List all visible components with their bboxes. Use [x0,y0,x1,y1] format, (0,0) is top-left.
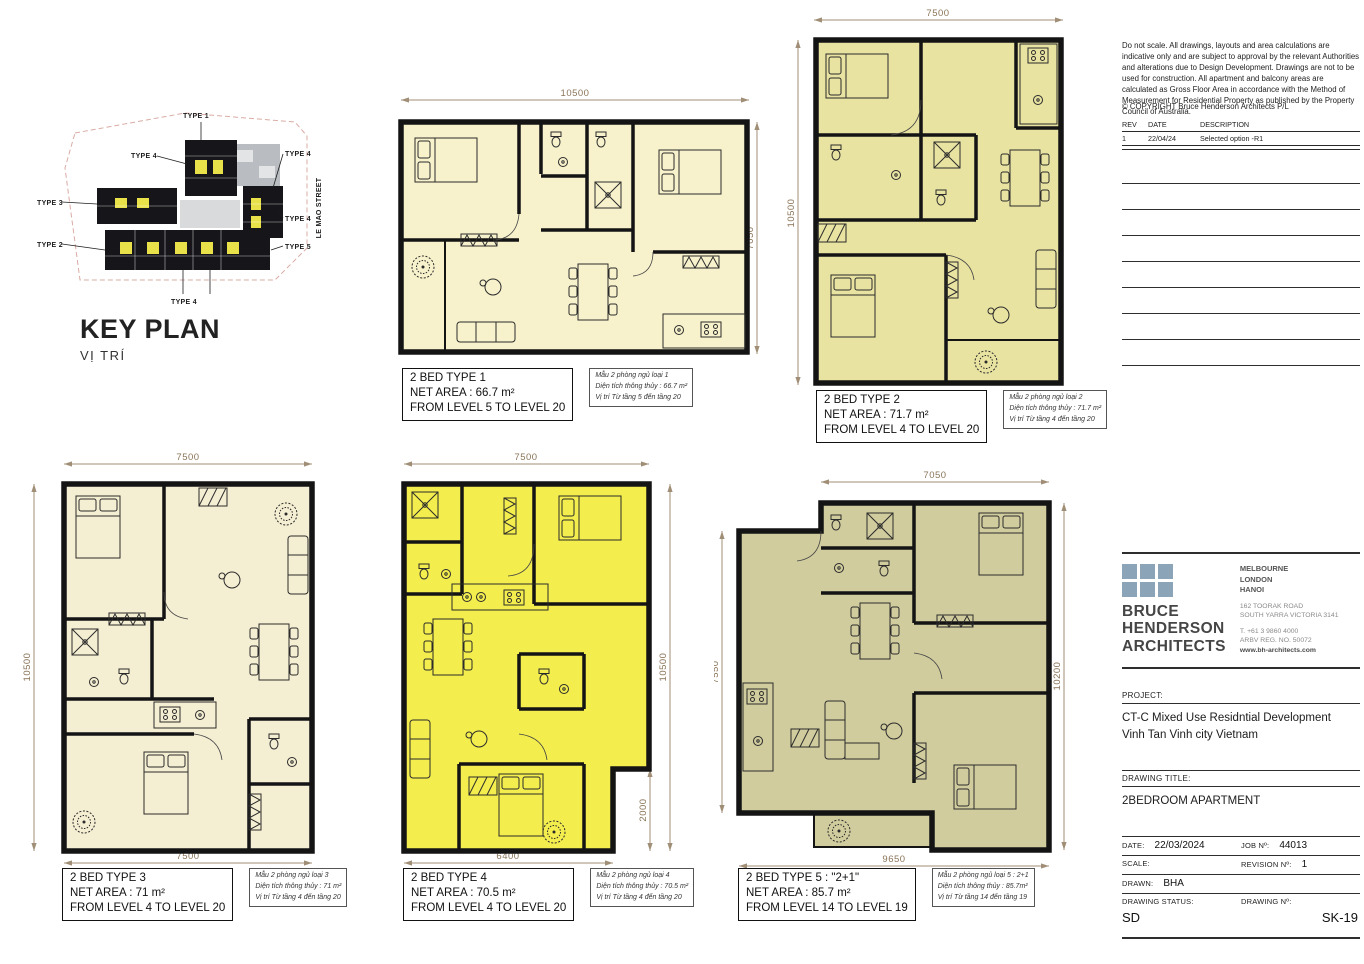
keyplan-label-type4b: TYPE 4 [171,299,197,306]
drawing-title-label: DRAWING TITLE: [1122,771,1360,786]
plan-levels: FROM LEVEL 4 TO LEVEL 20 [70,901,225,916]
empty-revision-row [1122,340,1360,366]
svg-text:10500: 10500 [561,88,590,99]
firm-website: www.bh-architects.com [1240,646,1339,656]
plan-caption-type5: 2 BED TYPE 5 : "2+1" NET AREA : 85.7 m² … [738,868,1035,921]
plan-label-box: 2 BED TYPE 1 NET AREA : 66.7 m² FROM LEV… [402,368,573,421]
empty-revision-row [1122,262,1360,288]
plan-caption-type2: 2 BED TYPE 2 NET AREA : 71.7 m² FROM LEV… [816,390,1107,443]
plan-area: NET AREA : 71 m² [70,886,225,901]
balcony [814,813,932,847]
empty-revision-row [1122,158,1360,184]
svg-text:10500: 10500 [22,653,33,682]
plan-note-vietnamese: Mẫu 2 phòng ngủ loại 1 Diện tích thông t… [589,368,693,407]
firm-logo: BRUCE HENDERSON ARCHITECTS [1122,564,1226,655]
building-tower-1 [185,140,237,196]
svg-text:7050: 7050 [923,470,946,481]
plan-title: 2 BED TYPE 4 [411,871,566,886]
key-plan-subtitle: VỊ TRÍ [80,348,220,363]
project-section: PROJECT: CT-C Mixed Use Residntial Devel… [1122,688,1360,743]
revision-table: REV DATE DESCRIPTION 1 22/04/24 Selected… [1122,118,1360,150]
floor-plan-type1: 10500 7050 [398,88,766,370]
dimension-bottom: 9650 [739,854,1049,869]
revision-table-header: REV DATE DESCRIPTION [1122,118,1360,132]
svg-text:9650: 9650 [882,854,905,865]
dimension-top: 7500 [64,452,312,467]
svg-text:7500: 7500 [514,452,537,463]
plan-title: 2 BED TYPE 5 : "2+1" [746,871,908,886]
svg-text:10500: 10500 [786,199,797,228]
firm-name: BRUCE HENDERSON ARCHITECTS [1122,603,1226,655]
plan-levels: FROM LEVEL 4 TO LEVEL 20 [411,901,566,916]
empty-revision-row [1122,184,1360,210]
status-label: DRAWING STATUS: [1122,897,1194,906]
svg-text:10500: 10500 [658,653,669,682]
plan-label-box: 2 BED TYPE 2 NET AREA : 71.7 m² FROM LEV… [816,390,987,443]
dimension-left: 10500 [786,40,801,385]
plan-levels: FROM LEVEL 14 TO LEVEL 19 [746,901,908,916]
firm-block: BRUCE HENDERSON ARCHITECTS MELBOURNE LON… [1122,552,1360,669]
dimension-left: 10500 [22,484,37,851]
drawn-label: DRAWN: [1122,879,1153,888]
plan-caption-type1: 2 BED TYPE 1 NET AREA : 66.7 m² FROM LEV… [402,368,693,421]
empty-revision-row [1122,210,1360,236]
drawn-row: DRAWN: BHA [1122,874,1360,893]
plan-area: NET AREA : 66.7 m² [410,386,565,401]
key-plan-title: KEY PLAN [80,314,220,345]
keyplan-label-type4c: TYPE 4 [285,151,311,158]
scale-label: SCALE: [1122,859,1150,868]
keyplan-label-type5: TYPE 5 [285,244,311,251]
firm-contact: MELBOURNE LONDON HANOI 162 TOORAK ROAD S… [1240,564,1339,655]
status-value: SD [1122,910,1140,925]
svg-text:7550: 7550 [714,660,721,683]
floor-plan-type2: 7500 10500 [786,8,1068,410]
plan-note-vietnamese: Mẫu 2 phòng ngủ loại 2 Diện tích thông t… [1003,390,1107,429]
key-plan-drawing: TYPE 1 TYPE 4 TYPE 3 TYPE 2 TYPE 4 TYPE … [35,108,335,313]
plan-note-vietnamese: Mẫu 2 phòng ngủ loại 4 Diện tích thông t… [590,868,694,907]
floor-plan-type3: 7500 10500 7500 [20,452,328,884]
project-label: PROJECT: [1122,688,1360,703]
job-label: JOB Nº: [1241,841,1269,850]
drawing-sheet: TYPE 1 TYPE 4 TYPE 3 TYPE 2 TYPE 4 TYPE … [0,0,1364,964]
floor-area [739,503,1049,850]
floor-area [404,484,649,851]
plan-area: NET AREA : 85.7 m² [746,886,908,901]
svg-text:10200: 10200 [1052,662,1063,691]
plan-caption-type3: 2 BED TYPE 3 NET AREA : 71 m² FROM LEVEL… [62,868,347,921]
key-plan-title-block: KEY PLAN VỊ TRÍ [80,314,220,363]
plan-area: NET AREA : 71.7 m² [824,408,979,423]
svg-text:7500: 7500 [176,452,199,463]
revision-row: 1 22/04/24 Selected option -R1 [1122,132,1360,146]
dimension-right: 10200 [1052,503,1067,850]
floor-plan-type5: 7050 7550 10200 9650 [714,468,1078,880]
fields-section: DATE: 22/03/2024 JOB Nº: 44013 SCALE: RE… [1122,836,1360,939]
plan-title: 2 BED TYPE 2 [824,393,979,408]
revision-value: 1 [1302,859,1308,870]
plan-levels: FROM LEVEL 5 TO LEVEL 20 [410,401,565,416]
date-value: 22/03/2024 [1155,840,1205,851]
plan-title: 2 BED TYPE 1 [410,371,565,386]
date-job-row: DATE: 22/03/2024 JOB Nº: 44013 [1122,836,1360,855]
plan-label-box: 2 BED TYPE 3 NET AREA : 71 m² FROM LEVEL… [62,868,233,921]
scale-revision-row: SCALE: REVISION Nº: 1 [1122,855,1360,874]
logo-squares-icon [1122,564,1226,597]
plan-label-box: 2 BED TYPE 4 NET AREA : 70.5 m² FROM LEV… [403,868,574,921]
drawing-number-label: DRAWING Nº: [1241,897,1292,906]
job-value: 44013 [1279,840,1307,851]
empty-revision-row [1122,236,1360,262]
floor-area [401,122,747,352]
dimension-left: 7550 [714,531,725,813]
drawn-value: BHA [1163,878,1184,889]
dimension-top: 7500 [814,8,1063,23]
date-label: DATE: [1122,841,1145,850]
dimension-top: 7050 [821,470,1049,485]
drawing-title-section: DRAWING TITLE: 2BEDROOM APARTMENT [1122,770,1360,810]
keyplan-label-type3: TYPE 3 [37,200,63,207]
dimension-right: 10500 [658,484,673,851]
plan-area: NET AREA : 70.5 m² [411,886,566,901]
empty-revision-row [1122,314,1360,340]
plan-note-vietnamese: Mẫu 2 phòng ngủ loại 5 : 2+1 Diện tích t… [932,868,1035,907]
empty-revision-row [1122,288,1360,314]
copyright-text: © COPYRIGHT Bruce Henderson Architects P… [1122,102,1289,111]
keyplan-label-type4d: TYPE 4 [285,216,311,223]
svg-text:7500: 7500 [926,8,949,19]
dimension-right-2000: 2000 [638,769,653,851]
title-block: Do not scale. All drawings, layouts and … [1122,40,1360,950]
plan-note-vietnamese: Mẫu 2 phòng ngủ loại 3 Diện tích thông t… [249,868,347,907]
plan-levels: FROM LEVEL 4 TO LEVEL 20 [824,423,979,438]
floor-area [816,40,1061,383]
plan-caption-type4: 2 BED TYPE 4 NET AREA : 70.5 m² FROM LEV… [403,868,694,921]
plan-label-box: 2 BED TYPE 5 : "2+1" NET AREA : 85.7 m² … [738,868,916,921]
podium [180,200,240,228]
drawing-title: 2BEDROOM APARTMENT [1122,787,1360,810]
project-name: CT-C Mixed Use Residntial Development Vi… [1122,704,1360,743]
dimension-top: 7500 [404,452,649,467]
empty-revision-rows [1122,158,1360,366]
drawing-number-value: SK-19 [1322,910,1358,925]
dimension-top: 10500 [401,88,749,103]
svg-text:2000: 2000 [638,798,649,821]
keyplan-label-type4a: TYPE 4 [131,153,157,160]
street-label: LE MAO STREET [316,177,323,238]
floor-plan-type4: 7500 10500 2000 6400 [394,452,686,884]
status-row: DRAWING STATUS: DRAWING Nº: SD SK-19 [1122,893,1360,937]
plan-title: 2 BED TYPE 3 [70,871,225,886]
keyplan-label-type1: TYPE 1 [183,113,209,120]
revision-label: REVISION Nº: [1241,860,1292,869]
keyplan-label-type2: TYPE 2 [37,242,63,249]
